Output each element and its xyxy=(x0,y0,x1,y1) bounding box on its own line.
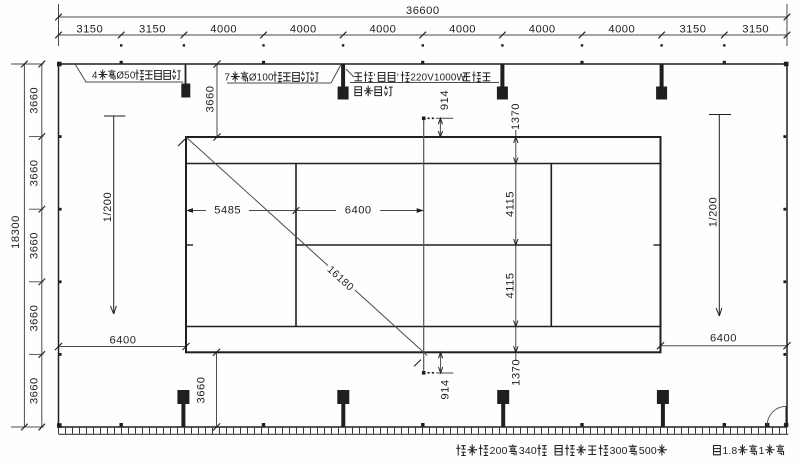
svg-text:': ' xyxy=(374,72,376,83)
svg-text:3150: 3150 xyxy=(680,24,707,36)
svg-text:200: 200 xyxy=(490,446,508,457)
svg-text:4000: 4000 xyxy=(449,24,476,36)
svg-text:1370: 1370 xyxy=(511,359,523,386)
svg-text:4: 4 xyxy=(92,70,98,81)
svg-text:1370: 1370 xyxy=(510,103,522,130)
svg-text:4000: 4000 xyxy=(290,24,317,36)
svg-text:18300: 18300 xyxy=(10,215,22,249)
svg-text:3660: 3660 xyxy=(28,305,40,332)
svg-text:300: 300 xyxy=(610,446,628,457)
svg-text:3660: 3660 xyxy=(28,159,40,186)
svg-text:500: 500 xyxy=(639,446,657,457)
svg-text:914: 914 xyxy=(439,379,451,399)
svg-text:4000: 4000 xyxy=(210,24,237,36)
svg-text:3660: 3660 xyxy=(28,87,40,114)
svg-text:220V1000W: 220V1000W xyxy=(410,72,466,83)
svg-text:914: 914 xyxy=(439,90,451,110)
svg-text:': ' xyxy=(397,72,399,83)
svg-text:Ø50: Ø50 xyxy=(116,70,135,81)
svg-text:Ø100: Ø100 xyxy=(249,72,274,83)
svg-text:6400: 6400 xyxy=(710,333,737,345)
svg-text:3660: 3660 xyxy=(204,86,216,113)
svg-text:4115: 4115 xyxy=(504,191,516,217)
svg-text:5485: 5485 xyxy=(214,205,241,217)
svg-text:3150: 3150 xyxy=(742,24,769,36)
svg-text:1: 1 xyxy=(759,446,765,457)
svg-text:4000: 4000 xyxy=(529,24,556,36)
svg-text:1/200: 1/200 xyxy=(708,197,720,228)
svg-text:36600: 36600 xyxy=(406,5,440,17)
svg-text:4000: 4000 xyxy=(369,24,396,36)
svg-text:3660: 3660 xyxy=(196,377,208,404)
svg-text:3660: 3660 xyxy=(28,232,40,259)
svg-text:6400: 6400 xyxy=(110,335,137,347)
svg-text:3660: 3660 xyxy=(28,377,40,404)
svg-text:1.8: 1.8 xyxy=(723,446,738,457)
svg-text:1/200: 1/200 xyxy=(102,192,114,223)
svg-text:6400: 6400 xyxy=(345,205,372,217)
svg-text:4000: 4000 xyxy=(608,24,635,36)
svg-text:3150: 3150 xyxy=(139,24,166,36)
svg-text:4115: 4115 xyxy=(504,272,516,298)
svg-text:340: 340 xyxy=(519,446,537,457)
svg-text:7: 7 xyxy=(225,72,231,83)
svg-text:3150: 3150 xyxy=(76,24,103,36)
